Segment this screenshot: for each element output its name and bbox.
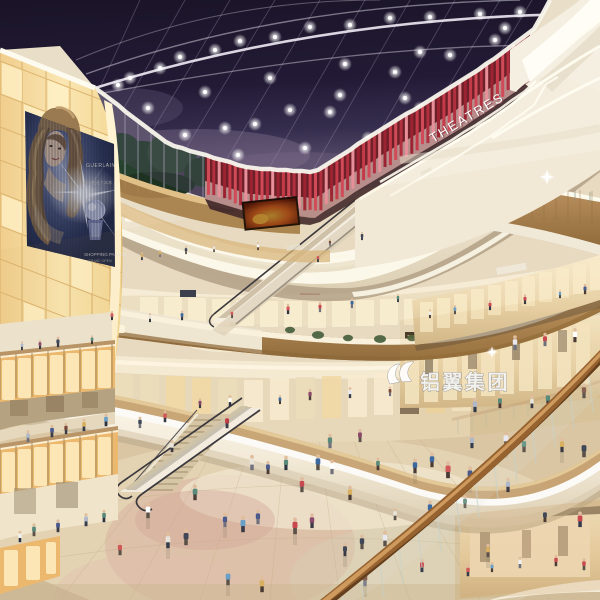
- svg-text:铝翼集团: 铝翼集团: [420, 370, 510, 394]
